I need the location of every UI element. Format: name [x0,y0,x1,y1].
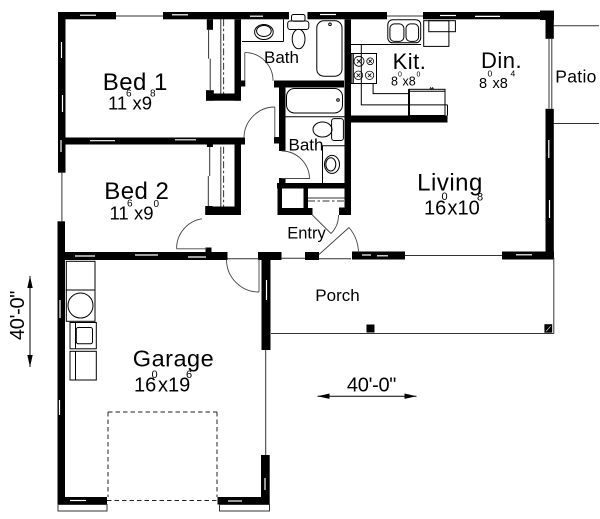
svg-text:Bath: Bath [289,136,324,155]
svg-text:Entry: Entry [287,225,326,243]
svg-text:0: 0 [417,72,421,79]
svg-text:8: 8 [150,89,156,100]
svg-text:4: 4 [511,69,516,79]
svg-text:Living: Living [417,170,483,197]
svg-text:x10: x10 [448,198,480,220]
svg-text:11: 11 [108,93,127,114]
svg-text:Patio: Patio [555,67,596,87]
svg-text:Bath: Bath [264,48,299,67]
svg-text:40'-0": 40'-0" [7,291,29,340]
svg-text:0: 0 [398,72,402,79]
svg-text:Porch: Porch [315,286,359,305]
svg-text:0: 0 [152,369,158,381]
svg-text:8: 8 [479,76,487,92]
svg-text:6: 6 [186,369,192,381]
svg-text:Garage: Garage [133,346,214,372]
svg-text:6: 6 [127,199,133,210]
svg-text:8: 8 [391,75,398,89]
svg-text:40'-0": 40'-0" [347,375,396,397]
svg-text:6: 6 [126,89,132,100]
svg-text:Bed 2: Bed 2 [104,178,169,205]
svg-text:x8: x8 [403,75,416,89]
svg-text:0: 0 [154,199,160,210]
svg-text:Kit.: Kit. [393,49,427,74]
svg-text:x9: x9 [134,203,154,224]
svg-text:x8: x8 [493,76,508,92]
svg-text:11: 11 [110,203,129,224]
svg-text:8: 8 [477,192,483,204]
